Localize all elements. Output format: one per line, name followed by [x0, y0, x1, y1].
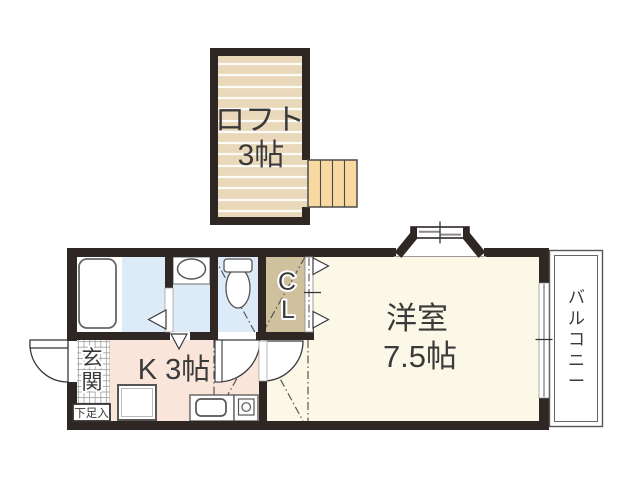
- kitchen-counter: [190, 395, 258, 421]
- svg-text:ニ: ニ: [568, 351, 585, 370]
- entrance-door-leaf: [30, 340, 68, 348]
- western-room-label: 洋室: [386, 301, 448, 336]
- balcony-label: バ ル コ ニ ー: [568, 288, 585, 391]
- entrance-label-1: 玄: [82, 347, 103, 370]
- svg-text:ル: ル: [568, 309, 585, 328]
- room-door-opening: [259, 341, 267, 381]
- washbasin-icon: [173, 257, 210, 284]
- toilet-door-leaf: [215, 340, 222, 382]
- shoe-cabinet-label: 下足入: [74, 407, 109, 420]
- floorplan-canvas: ロフト 3帖: [0, 0, 640, 480]
- bathtub-icon: [79, 259, 116, 328]
- western-room-size-label: 7.5帖: [383, 339, 457, 374]
- svg-text:コ: コ: [568, 330, 585, 349]
- loft-size-label: 3帖: [238, 139, 285, 172]
- floorplan-page: ロフト 3帖: [0, 0, 640, 480]
- toilet-icon: [224, 259, 252, 308]
- closet-label-c: C: [278, 268, 296, 296]
- svg-text:バ: バ: [568, 288, 585, 307]
- entrance-label-2: 関: [82, 371, 103, 394]
- svg-text:ー: ー: [568, 372, 585, 391]
- kitchen-label: K 3帖: [138, 353, 211, 386]
- kitchen-sink-icon: [196, 399, 226, 416]
- refrigerator-space: [118, 385, 156, 420]
- loft-label: ロフト: [215, 104, 305, 137]
- closet-label-l: L: [281, 296, 295, 324]
- loft-stairs: [308, 160, 357, 207]
- shoe-cabinet: 下足入: [73, 404, 110, 421]
